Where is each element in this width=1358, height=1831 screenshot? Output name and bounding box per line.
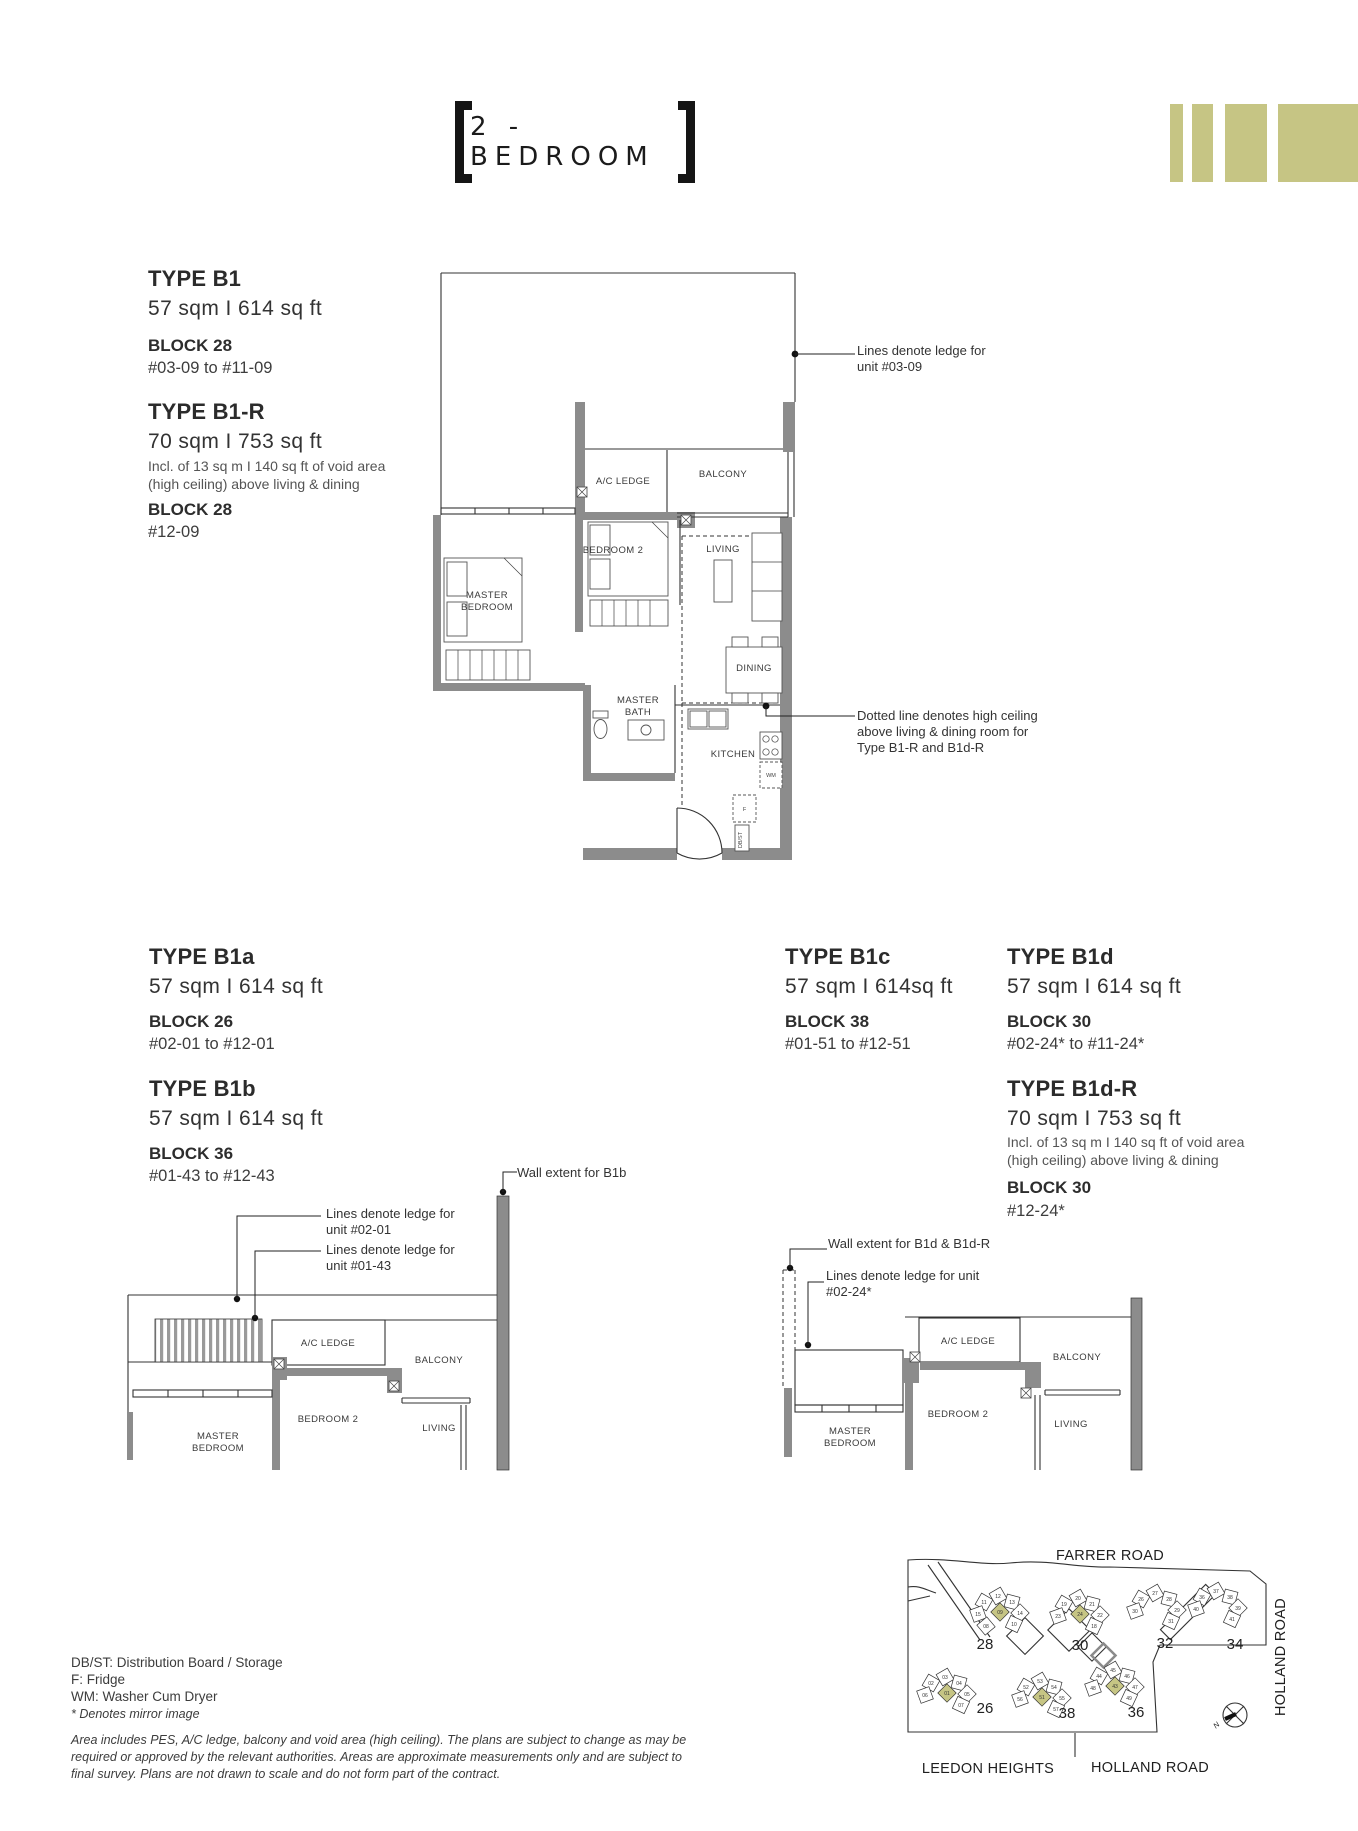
svg-text:04: 04 <box>956 1681 962 1687</box>
svg-text:22: 22 <box>1097 1613 1103 1619</box>
type-b1d-units: #02-24* to #11-24* <box>1007 1035 1144 1054</box>
leedon-heights-label: LEEDON HEIGHTS <box>922 1761 1054 1777</box>
type-b1a-area: 57 sqm I 614 sq ft <box>149 975 323 999</box>
label-balcony: BALCONY <box>699 469 747 480</box>
svg-text:24: 24 <box>1077 1612 1083 1618</box>
svg-text:20: 20 <box>1075 1596 1081 1602</box>
svg-text:14: 14 <box>1017 1611 1023 1617</box>
brand-bar-1 <box>1170 104 1183 182</box>
svg-text:44: 44 <box>1096 1674 1102 1680</box>
label-wm: WM <box>766 773 776 779</box>
label-balcony: BALCONY <box>1053 1352 1101 1363</box>
type-b1-area: 57 sqm I 614 sq ft <box>148 297 322 321</box>
type-b1a-name: TYPE B1a <box>149 944 255 970</box>
floorplan-b1d: MASTER BEDROOM A/C LEDGE BALCONY BEDROOM… <box>700 1160 1160 1490</box>
svg-text:01: 01 <box>944 1691 950 1697</box>
label-kitchen: KITCHEN <box>711 749 756 760</box>
annotation-wall-b1b: Wall extent for B1b <box>517 1165 626 1181</box>
annotation-ledge-0201: Lines denote ledge forunit #02-01 <box>326 1206 455 1238</box>
annotation-ledge-0224: Lines denote ledge for unit#02-24* <box>826 1268 979 1300</box>
label-bedroom2: BEDROOM 2 <box>583 545 644 556</box>
site-block-28: 1112131415100809 <box>970 1587 1030 1635</box>
svg-text:36: 36 <box>1199 1595 1205 1601</box>
svg-text:39: 39 <box>1235 1606 1241 1612</box>
site-block-26: 02030405060701 <box>917 1668 977 1714</box>
page-title: 2 - BEDROOM <box>470 101 680 183</box>
svg-text:46: 46 <box>1124 1674 1130 1680</box>
farrer-road-label: FARRER ROAD <box>1056 1548 1164 1564</box>
type-b1dr-area: 70 sqm I 753 sq ft <box>1007 1107 1181 1131</box>
svg-text:48: 48 <box>1090 1686 1096 1692</box>
window-band <box>441 508 575 514</box>
site-block-number-38: 38 <box>1059 1705 1076 1722</box>
svg-text:37: 37 <box>1213 1589 1219 1595</box>
type-b1a-units: #02-01 to #12-01 <box>149 1035 275 1054</box>
holland-road-side-label: HOLLAND ROAD <box>1273 1598 1289 1716</box>
ac-drain-icon <box>1021 1388 1031 1398</box>
type-b1dr-note1: Incl. of 13 sq m I 140 sq ft of void are… <box>1007 1134 1244 1150</box>
holland-road-bottom-label: HOLLAND ROAD <box>1091 1760 1209 1776</box>
svg-text:56: 56 <box>1017 1697 1023 1703</box>
label-bedroom2: BEDROOM 2 <box>298 1414 359 1425</box>
svg-text:BEDROOM: BEDROOM <box>192 1443 244 1454</box>
label-ac-ledge: A/C LEDGE <box>596 476 650 487</box>
svg-text:BEDROOM: BEDROOM <box>824 1438 876 1449</box>
brand-bar-2 <box>1192 104 1213 182</box>
type-b1r-note2: (high ceiling) above living & dining <box>148 476 360 492</box>
ac-drain-icon <box>681 515 691 525</box>
ac-drain-icon <box>910 1352 920 1362</box>
type-b1c-name: TYPE B1c <box>785 944 891 970</box>
svg-text:10: 10 <box>1011 1622 1017 1628</box>
svg-text:52: 52 <box>1023 1685 1029 1691</box>
type-b1r-units: #12-09 <box>148 523 199 542</box>
annotation-high-ceiling: Dotted line denotes high ceilingabove li… <box>857 708 1038 756</box>
type-b1r-name: TYPE B1-R <box>148 399 265 425</box>
brand-bar-3 <box>1225 104 1267 182</box>
label-living: LIVING <box>1054 1419 1088 1430</box>
svg-text:07: 07 <box>958 1703 964 1709</box>
svg-text:09: 09 <box>997 1610 1003 1616</box>
svg-text:54: 54 <box>1051 1685 1057 1691</box>
svg-text:51: 51 <box>1039 1695 1045 1701</box>
svg-text:45: 45 <box>1110 1668 1116 1674</box>
svg-text:47: 47 <box>1132 1685 1138 1691</box>
type-b1r-note1: Incl. of 13 sq m I 140 sq ft of void are… <box>148 458 385 474</box>
site-block-34: 363738394041 <box>1188 1582 1248 1628</box>
type-b1c-block: BLOCK 38 <box>785 1012 869 1032</box>
entrance-door <box>677 808 722 859</box>
label-master-bedroom: MASTER <box>197 1431 239 1442</box>
ac-drain-icon <box>274 1359 284 1369</box>
svg-text:40: 40 <box>1193 1607 1199 1613</box>
svg-text:12: 12 <box>995 1594 1001 1600</box>
svg-text:BATH: BATH <box>625 707 651 718</box>
svg-text:18: 18 <box>1091 1624 1097 1630</box>
annotation-ledge-0143: Lines denote ledge forunit #01-43 <box>326 1242 455 1274</box>
svg-text:28: 28 <box>1166 1597 1172 1603</box>
disclaimer-1: Area includes PES, A/C ledge, balcony an… <box>71 1733 686 1747</box>
site-block-30: 19202122231824 <box>1050 1589 1110 1635</box>
type-b1d-name: TYPE B1d <box>1007 944 1114 970</box>
type-b1r-block: BLOCK 28 <box>148 500 232 520</box>
site-block-36: 44454647484943 <box>1085 1661 1145 1707</box>
annotation-wall-b1d: Wall extent for B1d & B1d-R <box>828 1236 990 1252</box>
label-master-bedroom: MASTER <box>466 590 508 601</box>
svg-text:53: 53 <box>1037 1679 1043 1685</box>
compass: N <box>1211 1703 1247 1730</box>
site-block-number-28: 28 <box>977 1636 994 1653</box>
label-ac-ledge: A/C LEDGE <box>301 1338 355 1349</box>
wall-extent-b1b <box>497 1196 509 1470</box>
svg-text:15: 15 <box>975 1612 981 1618</box>
site-block-number-32: 32 <box>1157 1635 1174 1652</box>
type-b1b-area: 57 sqm I 614 sq ft <box>149 1107 323 1131</box>
svg-text:13: 13 <box>1009 1600 1015 1606</box>
title-bracket-right <box>678 101 695 183</box>
type-b1a-block: BLOCK 26 <box>149 1012 233 1032</box>
type-b1c-area: 57 sqm I 614sq ft <box>785 975 953 999</box>
svg-text:49: 49 <box>1126 1696 1132 1702</box>
svg-text:30: 30 <box>1132 1609 1138 1615</box>
hatched-ledge <box>155 1319 262 1362</box>
svg-text:55: 55 <box>1059 1696 1065 1702</box>
svg-text:06: 06 <box>922 1693 928 1699</box>
svg-text:21: 21 <box>1089 1602 1095 1608</box>
label-ac-ledge: A/C LEDGE <box>941 1336 995 1347</box>
fixtures <box>444 487 782 859</box>
svg-text:03: 03 <box>942 1675 948 1681</box>
svg-text:05: 05 <box>964 1692 970 1698</box>
label-dbst: DB/ST <box>738 831 744 848</box>
svg-text:43: 43 <box>1112 1684 1118 1690</box>
legend-wm: WM: Washer Cum Dryer <box>71 1689 218 1704</box>
site-block-number-30: 30 <box>1072 1637 1089 1654</box>
wall-extent-b1d <box>1131 1298 1142 1470</box>
svg-text:31: 31 <box>1168 1619 1174 1625</box>
brand-bar-4 <box>1278 104 1358 182</box>
site-block-32: 262728293031 <box>1127 1584 1187 1630</box>
svg-text:38: 38 <box>1227 1595 1233 1601</box>
svg-text:08: 08 <box>983 1624 989 1630</box>
svg-text:BEDROOM: BEDROOM <box>461 602 513 613</box>
type-b1-block: BLOCK 28 <box>148 336 232 356</box>
type-b1-name: TYPE B1 <box>148 266 241 292</box>
type-b1d-area: 57 sqm I 614 sq ft <box>1007 975 1181 999</box>
disclaimer-2: required or approved by the relevant aut… <box>71 1750 682 1764</box>
ledge-box <box>795 1350 903 1405</box>
legend-f: F: Fridge <box>71 1672 125 1687</box>
type-b1b-name: TYPE B1b <box>149 1076 256 1102</box>
ac-drain-icon <box>577 487 587 497</box>
legend-dbst: DB/ST: Distribution Board / Storage <box>71 1655 283 1670</box>
label-living: LIVING <box>706 544 740 555</box>
svg-text:26: 26 <box>1138 1597 1144 1603</box>
type-b1dr-name: TYPE B1d-R <box>1007 1076 1137 1102</box>
type-b1c-units: #01-51 to #12-51 <box>785 1035 911 1054</box>
label-dining: DINING <box>736 663 772 674</box>
annotation-ledge-0309: Lines denote ledge forunit #03-09 <box>857 343 986 375</box>
ac-drain-icon <box>389 1381 399 1391</box>
label-master-bath: MASTER <box>617 695 659 706</box>
svg-text:11: 11 <box>981 1600 986 1606</box>
type-b1r-area: 70 sqm I 753 sq ft <box>148 430 322 454</box>
label-master-bedroom: MASTER <box>829 1426 871 1437</box>
svg-text:27: 27 <box>1152 1591 1158 1597</box>
type-b1-units: #03-09 to #11-09 <box>148 359 272 378</box>
label-bedroom2: BEDROOM 2 <box>928 1409 989 1420</box>
svg-text:29: 29 <box>1174 1608 1180 1614</box>
disclaimer-3: final survey. Plans are not drawn to sca… <box>71 1767 500 1781</box>
svg-text:19: 19 <box>1061 1602 1067 1608</box>
svg-text:41: 41 <box>1229 1617 1235 1623</box>
legend-mirror: * Denotes mirror image <box>71 1707 200 1721</box>
north-label: N <box>1211 1720 1221 1731</box>
site-block-number-36: 36 <box>1128 1704 1145 1721</box>
site-map: 1112131415100809281920212223182430262728… <box>770 1535 1358 1825</box>
site-block-number-34: 34 <box>1227 1636 1244 1653</box>
walls <box>127 1357 402 1470</box>
svg-text:02: 02 <box>928 1681 934 1687</box>
wall-extent-dashed <box>783 1270 795 1388</box>
label-balcony: BALCONY <box>415 1355 463 1366</box>
svg-text:23: 23 <box>1055 1614 1061 1620</box>
site-block-number-26: 26 <box>977 1700 994 1717</box>
label-living: LIVING <box>422 1423 456 1434</box>
type-b1d-block: BLOCK 30 <box>1007 1012 1091 1032</box>
